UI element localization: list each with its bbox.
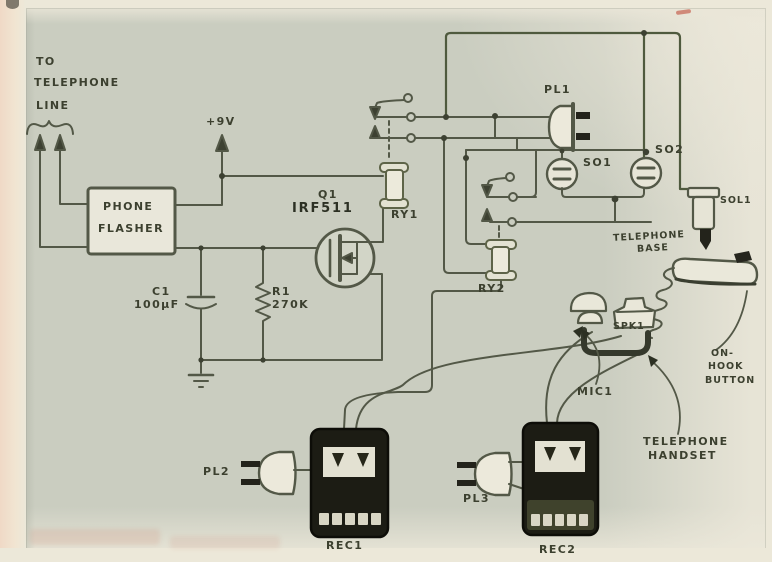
audio-wire-bundle	[356, 332, 647, 429]
label-so2: SO2	[655, 144, 684, 155]
label-supply: +9V	[206, 116, 236, 127]
phone-line-plug-icon	[27, 121, 88, 247]
phone-flasher-box	[88, 176, 318, 254]
plug-pl2	[241, 452, 312, 494]
label-pl1: PL1	[544, 84, 571, 95]
socket-so1	[547, 159, 577, 189]
label-spk1: SPK1	[613, 322, 645, 332]
label-pl3: PL3	[463, 493, 490, 504]
ground-icon	[189, 360, 213, 387]
label-c1: C1	[152, 286, 171, 297]
telephone-base	[673, 251, 757, 284]
label-ry1: RY1	[391, 209, 419, 220]
on-hook-button-icon	[734, 251, 752, 263]
label-to: TO	[36, 56, 56, 67]
cassette-window	[323, 447, 375, 477]
label-on-hook-2: HOOK	[708, 362, 743, 372]
socket-so2	[631, 158, 661, 188]
label-line: LINE	[36, 100, 69, 111]
recorder-rec1	[311, 429, 388, 537]
label-so1: SO1	[583, 157, 612, 168]
label-rec2: REC2	[539, 544, 576, 555]
solenoid-sol1	[688, 188, 719, 250]
label-flasher: FLASHER	[98, 223, 164, 234]
recorder-rec2	[523, 423, 598, 535]
label-telephone-base-2: BASE	[637, 243, 669, 254]
label-telephone: TELEPHONE	[34, 77, 119, 88]
label-mic1: MIC1	[577, 386, 613, 397]
label-r1-value: 270K	[272, 299, 309, 310]
label-telephone-handset-2: HANDSET	[648, 450, 717, 461]
schematic-page: TO TELEPHONE LINE +9V PHONE FLASHER Q1 I…	[0, 0, 772, 562]
label-pl2: PL2	[203, 466, 230, 477]
label-sol1: SOL1	[720, 196, 752, 206]
capacitor-c1	[186, 248, 216, 360]
resistor-r1	[256, 248, 270, 360]
plug-pl3	[457, 453, 524, 495]
label-on-hook-3: BUTTON	[705, 376, 755, 386]
ground-rail-wire	[201, 274, 382, 360]
label-c1-value: 100µF	[134, 299, 180, 310]
label-phone: PHONE	[103, 201, 153, 212]
label-ry2: RY2	[478, 283, 506, 294]
label-telephone-handset-1: TELEPHONE	[643, 436, 728, 447]
relay-contacts-ry1	[370, 94, 551, 142]
label-rec1: REC1	[326, 540, 363, 551]
rec1-control-wire	[344, 281, 501, 429]
plug-pl1	[549, 104, 590, 150]
label-on-hook-1: ON-	[711, 349, 734, 359]
label-r1: R1	[272, 286, 291, 297]
mic-cup-icon	[571, 293, 606, 311]
relay-coil-ry1	[380, 121, 408, 208]
socket-bus-wire	[562, 188, 644, 197]
cassette-window	[535, 441, 585, 472]
label-q1: Q1	[318, 189, 338, 200]
distribution-wires	[444, 117, 643, 273]
supply-arrow-icon	[216, 135, 383, 176]
relay-coil-ry2	[486, 240, 516, 280]
label-q1-part: IRF511	[292, 202, 354, 215]
